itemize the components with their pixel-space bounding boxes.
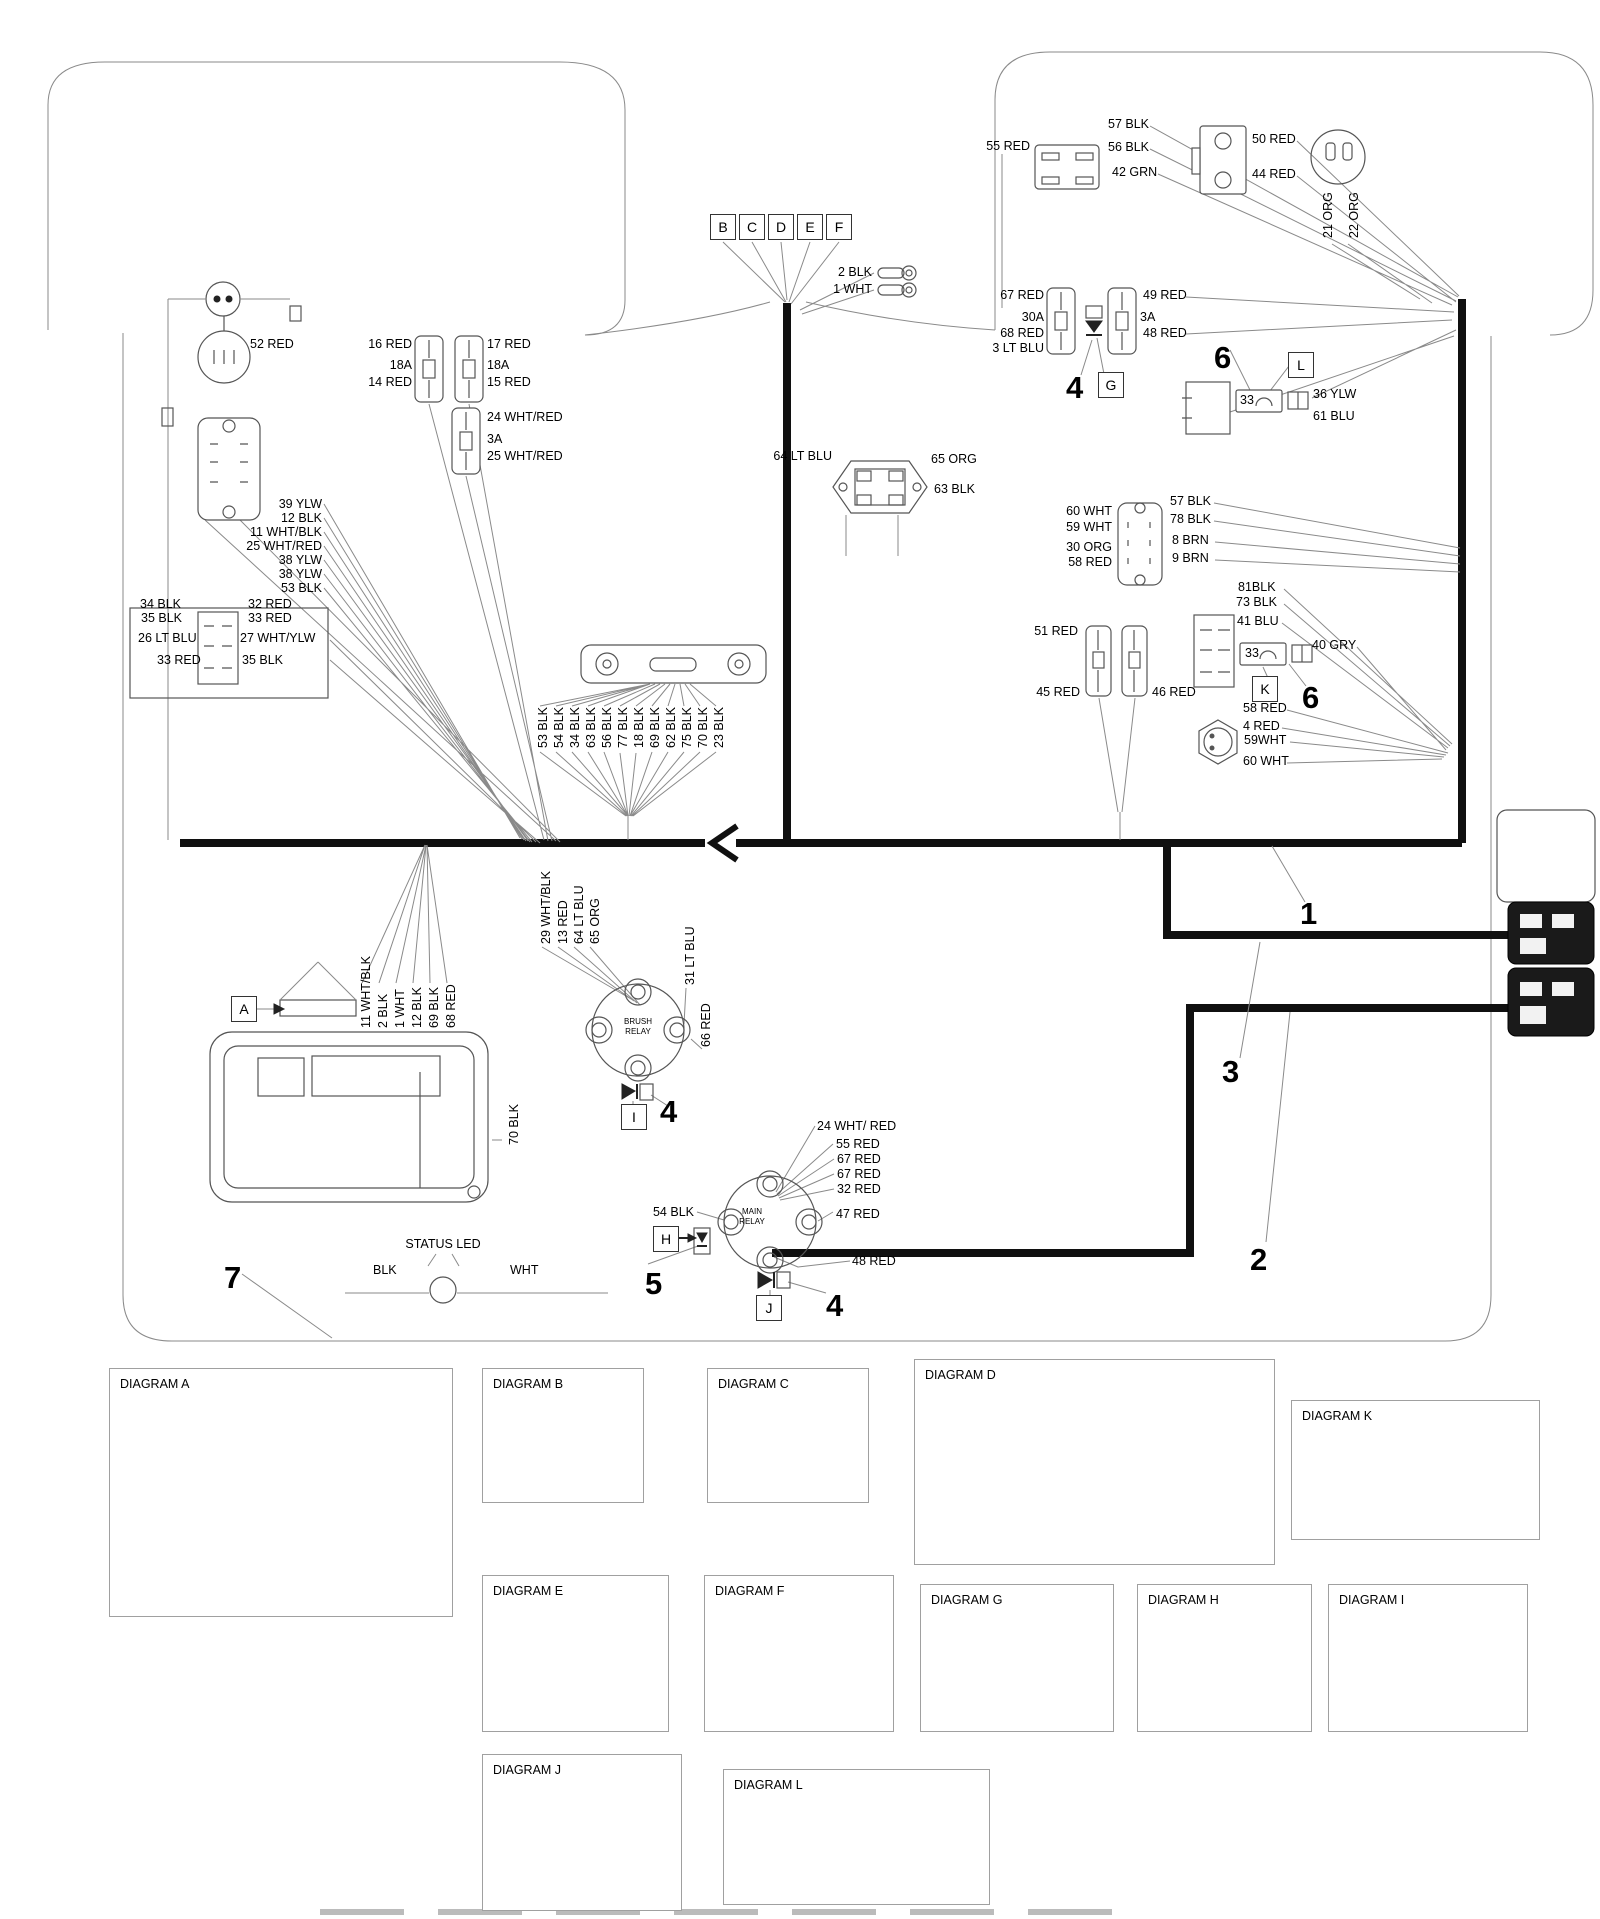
two-pin-connector <box>162 282 301 426</box>
wire-label: 61 BLU <box>1313 410 1355 423</box>
connector-60-block <box>1118 503 1162 585</box>
ref-box-g: G <box>1098 372 1124 398</box>
wire-label: 18A <box>390 359 412 372</box>
ref-box-h: H <box>653 1226 679 1252</box>
ref-box-j: J <box>756 1295 782 1321</box>
wire-label: 66 RED <box>700 1003 713 1047</box>
diagram-box-l: DIAGRAM L <box>723 1769 990 1905</box>
wire-label: 49 RED <box>1143 289 1187 302</box>
diagram-box-e: DIAGRAM E <box>482 1575 669 1732</box>
wire-label: 59WHT <box>1244 734 1286 747</box>
wire-label: 60 WHT <box>1066 505 1112 518</box>
machine-outline <box>48 52 1593 1341</box>
ref-box-k: K <box>1252 676 1278 702</box>
fuse-17 <box>455 336 483 402</box>
ref-box-i: I <box>621 1104 647 1130</box>
wire-label: 69 BLK <box>428 987 441 1028</box>
diagram-title: DIAGRAM H <box>1148 1593 1219 1607</box>
callout-6: 6 <box>1302 682 1319 713</box>
hex-bolt-connector <box>1199 720 1237 764</box>
diagram-box-k: DIAGRAM K <box>1291 1400 1540 1540</box>
fuse-46 <box>1122 626 1147 696</box>
main-relay-label: MAIN <box>742 1208 762 1216</box>
diagram-box-h: DIAGRAM H <box>1137 1584 1312 1732</box>
ref-box-f: F <box>826 214 852 240</box>
wire-label: 9 BRN <box>1172 552 1209 565</box>
wire-label: 65 ORG <box>931 453 977 466</box>
wire-label: 55 RED <box>986 140 1030 153</box>
wire-label: 12 BLK <box>281 512 322 525</box>
wire-label: 56 BLK <box>1108 141 1149 154</box>
wire-label: 50 RED <box>1252 133 1296 146</box>
diagram-title: DIAGRAM F <box>715 1584 784 1598</box>
wire-label: 11 WHT/BLK <box>250 526 322 539</box>
wire-label: 75 BLK <box>681 707 694 748</box>
wire-label: 21 ORG <box>1322 192 1335 238</box>
wire-label: 14 RED <box>368 376 412 389</box>
wire-label: 54 BLK <box>553 707 566 748</box>
callout-1: 1 <box>1300 898 1317 929</box>
wire-label: 1 WHT <box>394 989 407 1028</box>
wire-label: 81BLK <box>1238 581 1276 594</box>
connector-64-65-63 <box>833 461 927 513</box>
relay-module <box>198 418 260 520</box>
wire-label: 35 BLK <box>242 654 283 667</box>
diagram-box-a: DIAGRAM A <box>109 1368 453 1617</box>
brush-relay-label: RELAY <box>625 1028 651 1036</box>
diode-J <box>758 1272 790 1288</box>
component-52 <box>198 316 250 383</box>
wire-label: 2 BLK <box>838 266 872 279</box>
wire-label: 70 BLK <box>697 707 710 748</box>
fuse-33-label: 33 <box>1240 394 1254 407</box>
wire-label: 25 WHT/RED <box>487 450 563 463</box>
wire-label: WHT <box>510 1264 538 1277</box>
wire-label: 33 RED <box>157 654 201 667</box>
diagram-title: DIAGRAM I <box>1339 1593 1404 1607</box>
fuse-33-label: 33 <box>1245 647 1259 660</box>
wire-label: 51 RED <box>1034 625 1078 638</box>
wire-label: 30A <box>1022 311 1044 324</box>
fuse-67 <box>1047 288 1075 354</box>
ring-terminals <box>878 266 916 297</box>
wire-label: 35 BLK <box>141 612 182 625</box>
callout-7: 7 <box>224 1262 241 1293</box>
wire-label: 44 RED <box>1252 168 1296 181</box>
wire-label: 63 BLK <box>585 707 598 748</box>
wire-label: 52 RED <box>250 338 294 351</box>
wire-label: 38 YLW <box>279 568 322 581</box>
wire-label: 11 WHT/BLK <box>360 956 373 1028</box>
callout-3: 3 <box>1222 1056 1239 1087</box>
wire-label: 3A <box>1140 311 1155 324</box>
wire-label: 18A <box>487 359 509 372</box>
diagram-box-d: DIAGRAM D <box>914 1359 1275 1565</box>
diode-H <box>679 1228 710 1254</box>
wire-label: 47 RED <box>836 1208 880 1221</box>
diagram-title: DIAGRAM E <box>493 1584 563 1598</box>
ref-box-b: B <box>710 214 736 240</box>
wire-label: 57 BLK <box>1170 495 1211 508</box>
fuse-block-55 <box>1035 145 1099 189</box>
main-relay-label: RELAY <box>739 1218 765 1226</box>
wire-label: 40 GRY <box>1312 639 1356 652</box>
diagram-box-i: DIAGRAM I <box>1328 1584 1528 1732</box>
diode-brush <box>622 1084 653 1100</box>
ref-box-c: C <box>739 214 765 240</box>
wire-label: 78 BLK <box>1170 513 1211 526</box>
component-50 <box>1192 126 1246 194</box>
wire-label: 22 ORG <box>1348 192 1361 238</box>
wire-label: 70 BLK <box>508 1104 521 1145</box>
diagram-title: DIAGRAM C <box>718 1377 789 1391</box>
wire-label: 12 BLK <box>411 987 424 1028</box>
wire-label: 26 LT BLU <box>138 632 197 645</box>
wire-label: 48 RED <box>852 1255 896 1268</box>
wire-label: 67 RED <box>837 1168 881 1181</box>
fuse-16 <box>415 336 443 402</box>
wire-label: 30 ORG <box>1066 541 1112 554</box>
wire-label: 60 WHT <box>1243 755 1289 768</box>
wire-label: 64 LT BLU <box>573 885 586 944</box>
callout-4: 4 <box>1066 372 1083 403</box>
callout-4: 4 <box>660 1096 677 1127</box>
wire-label: 3A <box>487 433 502 446</box>
wire-label: 63 BLK <box>934 483 975 496</box>
wire-label: 13 RED <box>557 900 570 944</box>
main-harness-wires <box>180 299 1555 1253</box>
wire-label: 67 RED <box>837 1153 881 1166</box>
wire-label: 46 RED <box>1152 686 1196 699</box>
wire-label: 54 BLK <box>653 1206 694 1219</box>
wire-label: 69 BLK <box>649 707 662 748</box>
wire-label: 17 RED <box>487 338 531 351</box>
wire-label: 34 BLK <box>140 598 181 611</box>
diagram-box-b: DIAGRAM B <box>482 1368 644 1503</box>
ref-box-l: L <box>1288 352 1314 378</box>
callout-5: 5 <box>645 1268 662 1299</box>
diagram-title: DIAGRAM L <box>734 1778 803 1792</box>
callout-2: 2 <box>1250 1244 1267 1275</box>
wire-label: 34 BLK <box>569 707 582 748</box>
mounting-plate <box>581 645 766 683</box>
wire-label: 73 BLK <box>1236 596 1277 609</box>
wire-label: 53 BLK <box>281 582 322 595</box>
wire-label: 23 BLK <box>713 707 726 748</box>
wire-label: 68 RED <box>1000 327 1044 340</box>
wire-label: 55 RED <box>836 1138 880 1151</box>
diagram-box-f: DIAGRAM F <box>704 1575 894 1732</box>
wire-label: 24 WHT/ RED <box>817 1120 896 1133</box>
wire-label: 42 GRN <box>1112 166 1157 179</box>
wire-label: 8 BRN <box>1172 534 1209 547</box>
fuse-49 <box>1108 288 1136 354</box>
diagram-box-g: DIAGRAM G <box>920 1584 1114 1732</box>
diagram-title: DIAGRAM G <box>931 1593 1003 1607</box>
wire-label: 32 RED <box>837 1183 881 1196</box>
wire-label: 59 WHT <box>1066 521 1112 534</box>
ref-box-a: A <box>231 996 257 1022</box>
status-led-label: STATUS LED <box>405 1238 480 1251</box>
diagram-box-c: DIAGRAM C <box>707 1368 869 1503</box>
wire-label: 56 BLK <box>601 707 614 748</box>
wire-label: 58 RED <box>1243 702 1287 715</box>
wire-label: 41 BLU <box>1237 615 1279 628</box>
wire-label: 29 WHT/BLK <box>540 871 553 944</box>
callout-6: 6 <box>1214 342 1231 373</box>
status-led <box>430 1277 456 1303</box>
diode-G <box>1086 306 1102 335</box>
wire-label: 31 LT BLU <box>684 926 697 985</box>
wire-label: 18 BLK <box>633 707 646 748</box>
wire-label: 16 RED <box>368 338 412 351</box>
right-edge-connectors <box>1497 810 1595 1036</box>
ref-box-d: D <box>768 214 794 240</box>
wire-label: 53 BLK <box>537 707 550 748</box>
wire-label: 4 RED <box>1243 720 1280 733</box>
fuse-24 <box>452 408 480 474</box>
wire-label: 2 BLK <box>377 994 390 1028</box>
wire-label: 33 RED <box>248 612 292 625</box>
wire-label: 67 RED <box>1000 289 1044 302</box>
wire-label: 62 BLK <box>665 707 678 748</box>
fuse-45 <box>1086 626 1111 696</box>
diagram-box-j: DIAGRAM J <box>482 1754 682 1911</box>
wire-label: 3 LT BLU <box>992 342 1044 355</box>
stage: 2 BLK1 WHT55 RED57 BLK56 BLK42 GRN50 RED… <box>0 0 1600 1919</box>
wire-label: 48 RED <box>1143 327 1187 340</box>
fuse-holder-33-L <box>1182 382 1308 434</box>
diagram-title: DIAGRAM B <box>493 1377 563 1391</box>
wire-label: 36 YLW <box>1313 388 1356 401</box>
wire-label: 39 YLW <box>279 498 322 511</box>
diagram-title: DIAGRAM D <box>925 1368 996 1382</box>
wire-label: BLK <box>373 1264 397 1277</box>
wire-label: 38 YLW <box>279 554 322 567</box>
wire-label: 32 RED <box>248 598 292 611</box>
diagram-title: DIAGRAM J <box>493 1763 561 1777</box>
wire-label: 64 LT BLU <box>773 450 832 463</box>
diagram-title: DIAGRAM A <box>120 1377 189 1391</box>
diagram-title: DIAGRAM K <box>1302 1409 1372 1423</box>
wire-label: 25 WHT/RED <box>246 540 322 553</box>
brush-relay-label: BRUSH <box>624 1018 652 1026</box>
wire-label: 58 RED <box>1068 556 1112 569</box>
ref-box-e: E <box>797 214 823 240</box>
wire-label: 68 RED <box>445 984 458 1028</box>
wire-label: 24 WHT/RED <box>487 411 563 424</box>
wire-label: 15 RED <box>487 376 531 389</box>
wire-label: 57 BLK <box>1108 118 1149 131</box>
wire-label: 65 ORG <box>589 898 602 944</box>
wire-label: 77 BLK <box>617 707 630 748</box>
wire-label: 1 WHT <box>833 283 872 296</box>
wire-label: 27 WHT/YLW <box>240 632 315 645</box>
callout-4: 4 <box>826 1290 843 1321</box>
connector-21-22 <box>1311 130 1365 184</box>
wire-label: 45 RED <box>1036 686 1080 699</box>
